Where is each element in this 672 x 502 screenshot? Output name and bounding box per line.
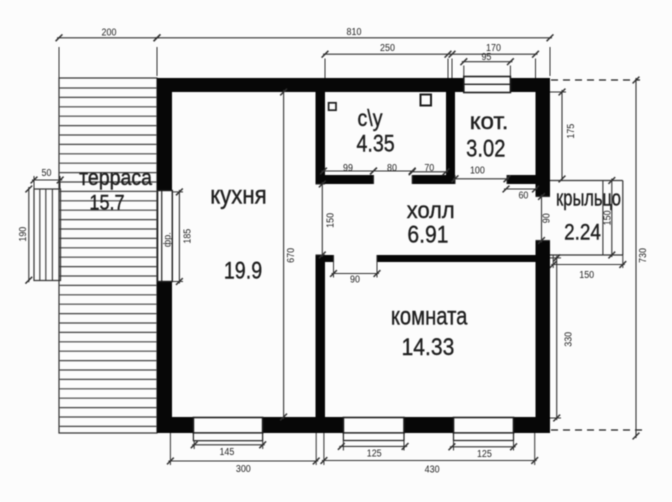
svg-text:холл: холл <box>407 198 455 224</box>
svg-text:90: 90 <box>350 274 360 286</box>
svg-text:190: 190 <box>17 226 29 241</box>
svg-text:14.33: 14.33 <box>401 334 454 361</box>
svg-text:комната: комната <box>391 301 468 330</box>
svg-text:95: 95 <box>481 51 491 63</box>
svg-text:2.24: 2.24 <box>564 220 601 245</box>
svg-text:кот.: кот. <box>470 109 509 134</box>
svg-text:185: 185 <box>182 229 194 244</box>
svg-text:4.35: 4.35 <box>356 129 394 156</box>
svg-text:430: 430 <box>425 464 440 476</box>
svg-text:175: 175 <box>566 124 578 139</box>
svg-text:15.7: 15.7 <box>89 191 124 215</box>
svg-text:60: 60 <box>518 190 528 202</box>
svg-text:фр.: фр. <box>162 232 174 247</box>
svg-text:125: 125 <box>367 448 382 460</box>
svg-text:6.91: 6.91 <box>407 221 448 248</box>
svg-text:19.9: 19.9 <box>224 256 262 283</box>
svg-text:80: 80 <box>387 162 397 174</box>
svg-text:125: 125 <box>477 448 492 460</box>
svg-text:с\у: с\у <box>358 106 383 132</box>
svg-text:810: 810 <box>347 26 362 38</box>
svg-text:670: 670 <box>285 247 297 262</box>
svg-text:50: 50 <box>42 168 52 180</box>
svg-text:70: 70 <box>424 162 434 174</box>
svg-text:730: 730 <box>638 248 650 263</box>
svg-text:100: 100 <box>470 165 485 177</box>
svg-text:150: 150 <box>579 269 594 281</box>
svg-text:150: 150 <box>325 212 337 227</box>
svg-text:90: 90 <box>541 213 553 223</box>
svg-text:крыльцо: крыльцо <box>556 186 621 211</box>
svg-text:145: 145 <box>219 446 234 458</box>
svg-text:150: 150 <box>602 210 614 225</box>
svg-text:200: 200 <box>102 27 117 39</box>
svg-text:кухня: кухня <box>210 181 266 210</box>
svg-text:330: 330 <box>563 331 575 346</box>
svg-text:терраса: терраса <box>79 166 152 190</box>
svg-text:3.02: 3.02 <box>466 135 505 162</box>
svg-text:300: 300 <box>236 463 251 475</box>
svg-text:99: 99 <box>343 162 353 174</box>
svg-text:250: 250 <box>380 42 395 54</box>
